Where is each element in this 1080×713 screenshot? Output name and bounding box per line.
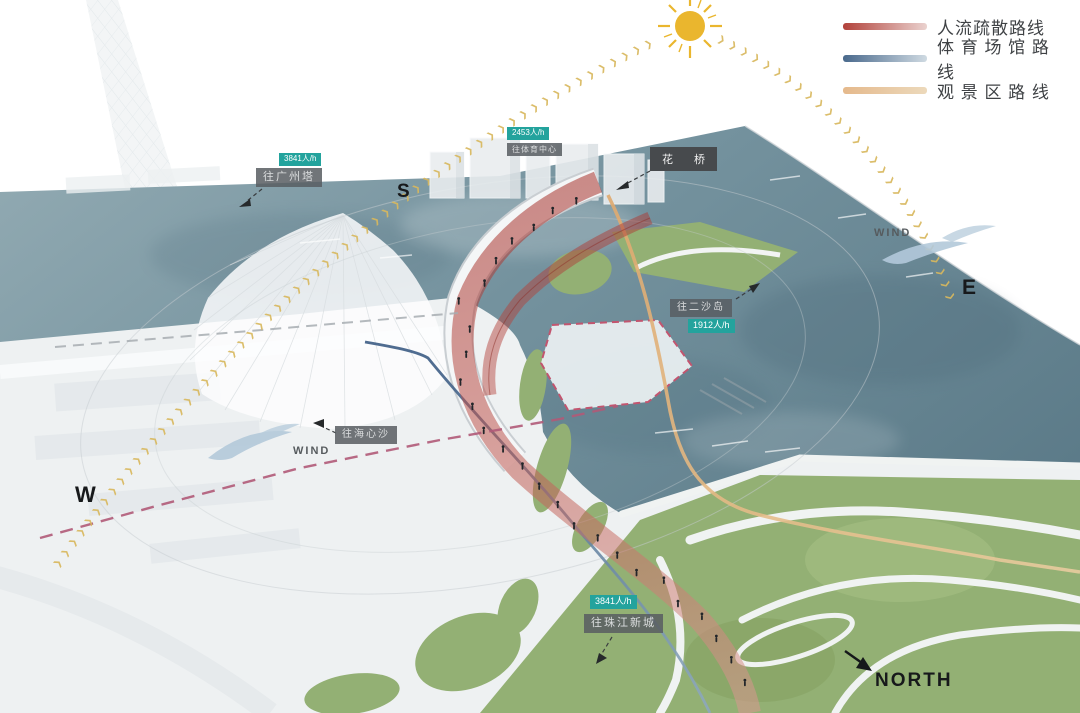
compass-east: E <box>962 276 976 300</box>
svg-text:❯: ❯ <box>884 175 897 187</box>
bridge-name-tag: 花 桥 <box>650 147 717 171</box>
flow-badge-canton-tower: 3841人/h <box>279 153 321 166</box>
svg-text:❯: ❯ <box>793 82 805 95</box>
svg-text:❯: ❯ <box>551 88 563 100</box>
svg-text:❯: ❯ <box>868 154 881 166</box>
svg-text:❯: ❯ <box>891 186 904 198</box>
svg-text:❯: ❯ <box>905 208 917 220</box>
svg-text:❯: ❯ <box>597 63 608 75</box>
svg-text:❯: ❯ <box>772 67 784 80</box>
compass-north: NORTH <box>875 670 953 692</box>
svg-text:❯: ❯ <box>912 220 924 231</box>
svg-text:❯: ❯ <box>540 95 552 107</box>
flow-badge-zhujiang: 3841人/h <box>590 595 637 609</box>
svg-text:❯: ❯ <box>716 34 727 46</box>
evacuation-route-swatch <box>843 23 927 30</box>
svg-text:❯: ❯ <box>898 197 910 209</box>
svg-text:❯: ❯ <box>518 109 530 121</box>
dest-badge-sports-center: 往体育中心 <box>507 143 562 156</box>
site-plan-artwork: ❯❯❯❯❯❯❯❯❯❯❯❯❯❯❯❯❯❯❯❯❯❯❯❯❯❯❯❯❯❯❯❯❯❯❯❯❯❯❯❯… <box>0 0 1080 713</box>
legend-item-scenic: 观 景 区 路 线 <box>843 74 1073 106</box>
legend-label: 体 育 场 馆 路 线 <box>937 33 1073 83</box>
dest-badge-haixinsha: 往海心沙 <box>335 426 397 444</box>
svg-text:❯: ❯ <box>620 50 631 62</box>
svg-text:❯: ❯ <box>574 75 585 87</box>
svg-text:❯: ❯ <box>563 82 575 94</box>
sports-route-swatch <box>843 55 927 62</box>
legend-item-sports: 体 育 场 馆 路 线 <box>843 42 1073 74</box>
svg-text:❯: ❯ <box>832 116 844 128</box>
svg-text:❯: ❯ <box>876 165 889 177</box>
legend: 人流疏散路线 体 育 场 馆 路 线 观 景 区 路 线 <box>843 10 1073 106</box>
svg-text:❯: ❯ <box>585 69 596 81</box>
dest-badge-zhujiang: 往珠江新城 <box>584 614 663 633</box>
svg-text:❯: ❯ <box>813 98 825 110</box>
compass-west: W <box>75 482 96 508</box>
wind-label-west: WIND <box>293 445 330 457</box>
svg-text:❯: ❯ <box>851 135 863 147</box>
sun-icon <box>658 0 722 58</box>
flow-badge-sports-center: 2453人/h <box>507 127 549 140</box>
dest-badge-ersha-island: 往二沙岛 <box>670 299 732 317</box>
svg-text:❯: ❯ <box>739 46 750 58</box>
svg-text:❯: ❯ <box>783 74 795 87</box>
dest-badge-canton-tower: 往广州塔 <box>256 168 322 187</box>
svg-text:❯: ❯ <box>823 107 835 119</box>
svg-text:❯: ❯ <box>761 59 773 71</box>
svg-text:❯: ❯ <box>643 39 654 51</box>
svg-text:❯: ❯ <box>859 144 872 156</box>
svg-text:❯: ❯ <box>918 231 930 242</box>
svg-text:❯: ❯ <box>750 53 762 65</box>
scenic-route-swatch <box>843 87 927 94</box>
svg-text:❯: ❯ <box>608 57 619 69</box>
svg-text:❯: ❯ <box>842 125 854 137</box>
wind-label-east: WIND <box>874 227 911 239</box>
svg-text:❯: ❯ <box>727 40 738 52</box>
legend-label: 观 景 区 路 线 <box>937 78 1050 103</box>
flow-badge-ersha-island: 1912人/h <box>688 319 735 333</box>
svg-text:❯: ❯ <box>529 102 541 114</box>
compass-south: S <box>397 181 410 203</box>
svg-text:❯: ❯ <box>803 90 815 103</box>
svg-text:❯: ❯ <box>631 44 642 56</box>
site-plan-diagram: ❯❯❯❯❯❯❯❯❯❯❯❯❯❯❯❯❯❯❯❯❯❯❯❯❯❯❯❯❯❯❯❯❯❯❯❯❯❯❯❯… <box>0 0 1080 713</box>
